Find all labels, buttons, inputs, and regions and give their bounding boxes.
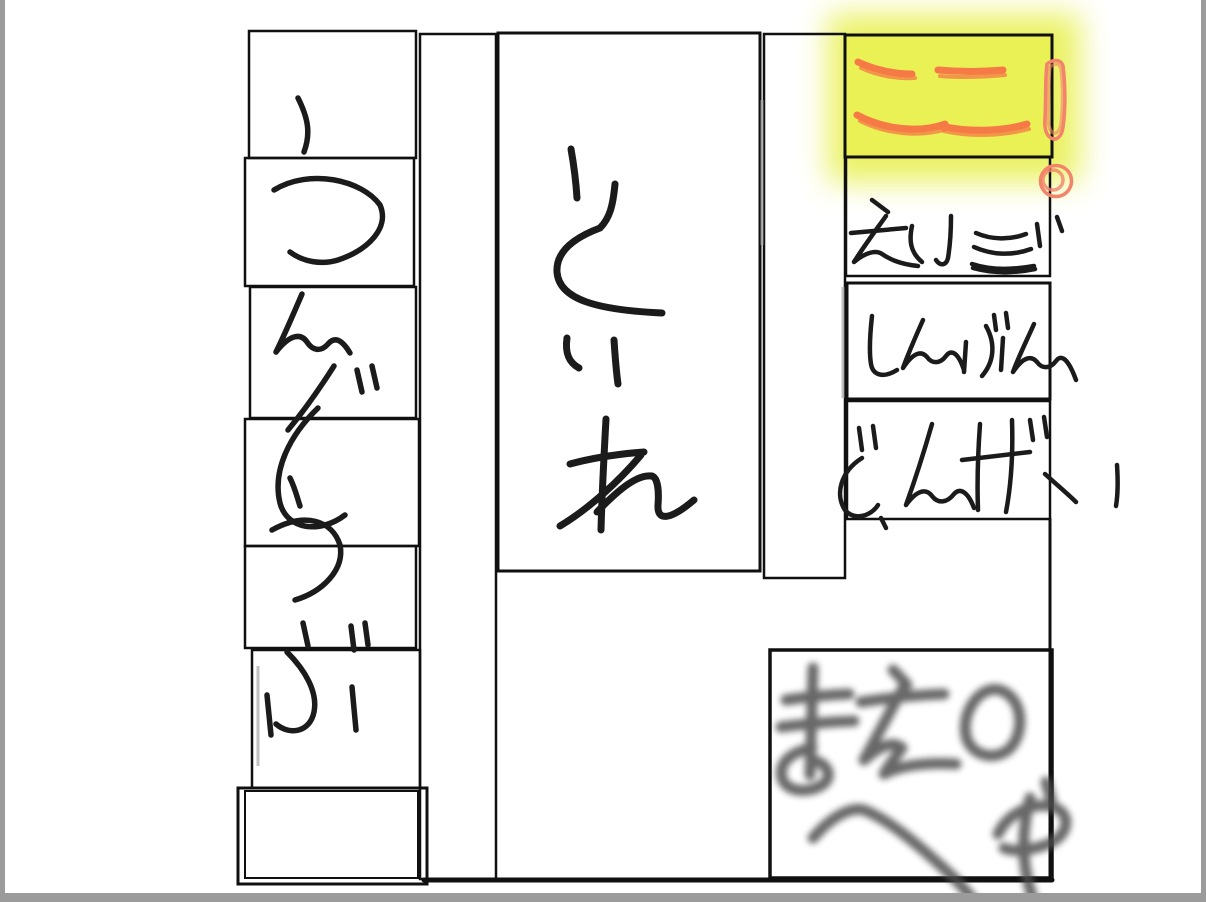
kana-ge-left xyxy=(978,424,980,510)
kana-i3-right xyxy=(1116,465,1118,506)
frame-right xyxy=(1201,0,1206,895)
kana-ya-tick xyxy=(1046,782,1051,801)
frame-left xyxy=(0,0,5,902)
kana-ko2-top xyxy=(938,70,1003,72)
kana-i-right xyxy=(614,340,618,384)
kana-ma-cross2 xyxy=(781,721,854,727)
kana-ma-cross1 xyxy=(786,694,849,700)
paint-canvas[interactable]: Hand-drawn room labels うんどうぶ といれ ここ! えいご… xyxy=(0,0,1206,902)
kana-ko2-top-echo xyxy=(940,75,1005,77)
frame-bottom xyxy=(0,893,1206,902)
